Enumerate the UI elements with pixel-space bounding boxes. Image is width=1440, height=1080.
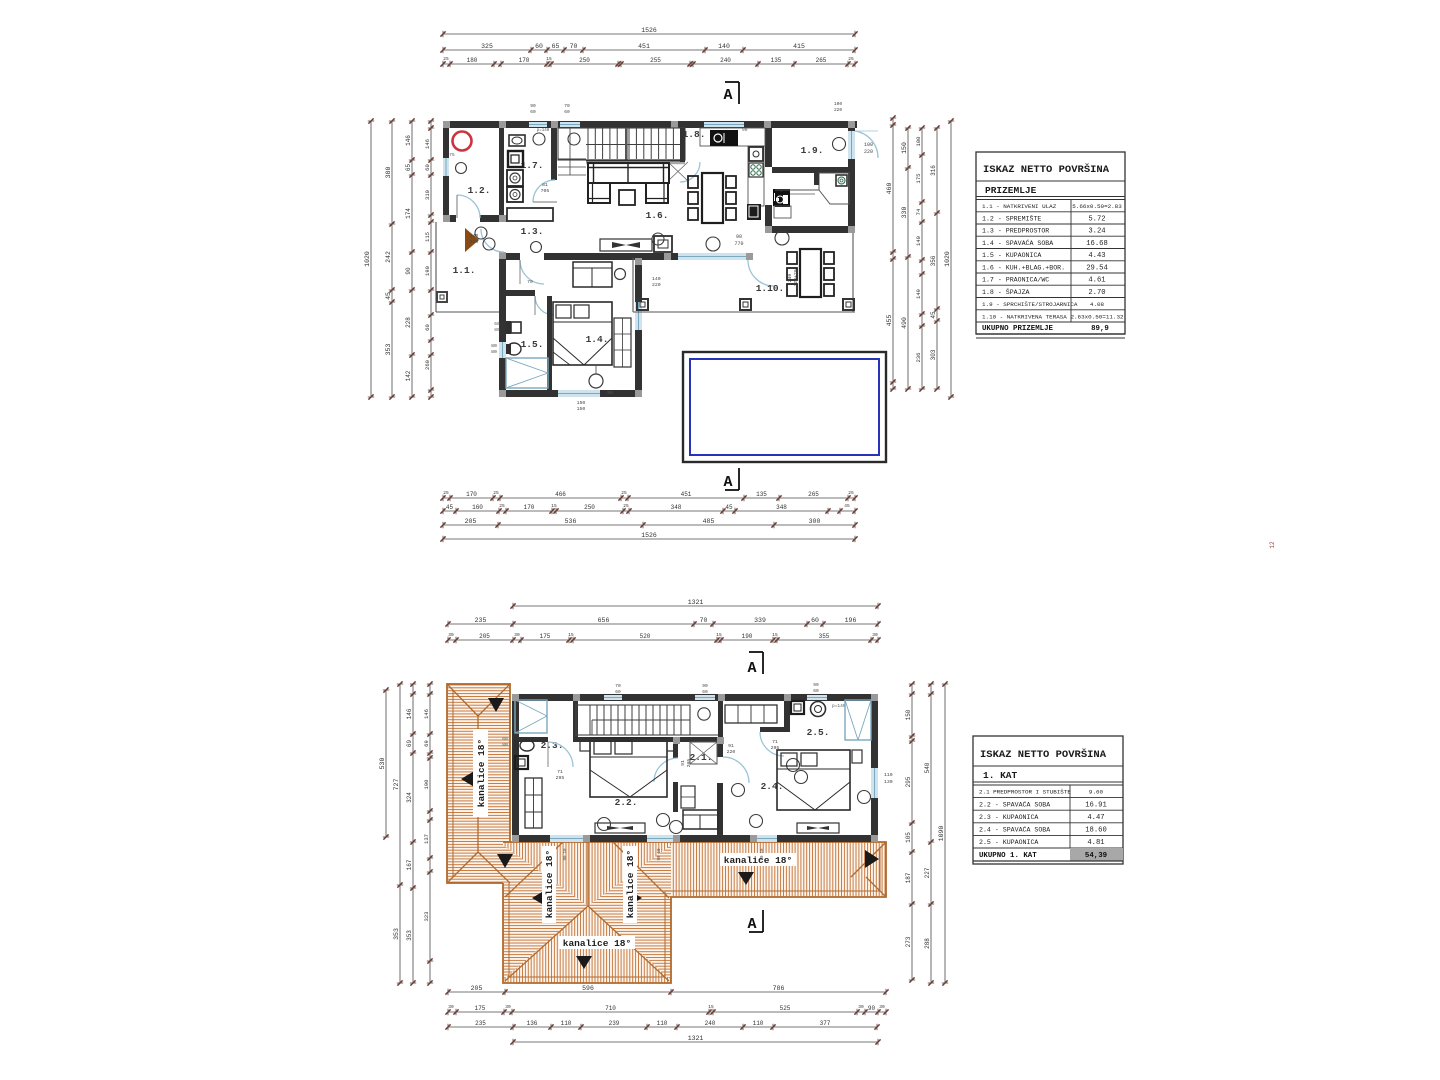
svg-text:140: 140	[652, 276, 661, 282]
svg-text:25: 25	[623, 503, 629, 509]
svg-text:1.9.: 1.9.	[801, 145, 824, 156]
svg-text:1.4.: 1.4.	[586, 334, 609, 345]
svg-text:25: 25	[848, 490, 854, 496]
svg-text:170: 170	[519, 57, 530, 64]
svg-text:UKUPNO 1. KAT: UKUPNO 1. KAT	[979, 852, 1037, 860]
svg-text:1.1.: 1.1.	[453, 265, 476, 276]
svg-text:265: 265	[808, 491, 819, 498]
svg-text:260: 260	[424, 360, 431, 370]
svg-text:451: 451	[681, 491, 692, 498]
svg-text:4.08: 4.08	[1090, 301, 1105, 308]
svg-text:380: 380	[385, 167, 392, 179]
svg-text:kanalice 18°: kanalice 18°	[544, 850, 555, 918]
svg-text:146: 146	[405, 135, 412, 146]
svg-text:1020: 1020	[364, 251, 371, 267]
svg-text:250: 250	[584, 504, 595, 511]
svg-text:71: 71	[772, 739, 778, 745]
svg-text:5.72: 5.72	[1088, 215, 1105, 223]
svg-text:1526: 1526	[641, 27, 657, 34]
svg-text:30: 30	[505, 1004, 511, 1010]
svg-text:60: 60	[424, 164, 431, 171]
svg-text:90: 90	[702, 683, 708, 689]
svg-text:1.3 - PREDPROSTOR: 1.3 - PREDPROSTOR	[982, 228, 1049, 235]
svg-text:2.4.: 2.4.	[761, 781, 784, 792]
svg-text:80: 80	[494, 327, 500, 333]
svg-text:150: 150	[577, 400, 586, 406]
svg-text:70: 70	[615, 683, 621, 689]
svg-text:242: 242	[385, 251, 392, 263]
svg-text:150: 150	[901, 142, 908, 154]
svg-text:596: 596	[582, 985, 594, 992]
svg-text:355: 355	[819, 633, 830, 640]
svg-text:80: 80	[502, 742, 508, 748]
svg-text:A: A	[723, 87, 732, 104]
svg-text:60: 60	[615, 689, 621, 695]
svg-text:727: 727	[393, 779, 400, 791]
svg-text:16.68: 16.68	[1086, 240, 1108, 248]
svg-text:353: 353	[385, 344, 392, 356]
svg-text:30: 30	[448, 632, 454, 638]
svg-text:A: A	[747, 660, 756, 677]
svg-text:60: 60	[530, 109, 536, 115]
svg-text:1.7 - PRAONICA/WC: 1.7 - PRAONICA/WC	[982, 277, 1049, 284]
svg-text:15: 15	[568, 632, 574, 638]
svg-text:1526: 1526	[641, 532, 657, 539]
svg-text:45: 45	[844, 503, 850, 509]
svg-text:205: 205	[479, 633, 490, 640]
svg-text:60: 60	[502, 736, 508, 742]
svg-text:kanalice 18°: kanalice 18°	[563, 938, 631, 949]
svg-text:295: 295	[556, 775, 565, 781]
svg-text:353: 353	[393, 928, 400, 940]
svg-text:60: 60	[811, 617, 819, 624]
svg-text:75: 75	[449, 152, 455, 158]
svg-text:2.1 PREDPROSTOR I STUBIŠTE: 2.1 PREDPROSTOR I STUBIŠTE	[979, 789, 1071, 796]
svg-text:540: 540	[924, 762, 931, 773]
svg-text:240: 240	[787, 274, 793, 283]
svg-text:80: 80	[491, 349, 497, 355]
svg-text:1.10.: 1.10.	[756, 283, 785, 294]
svg-text:1090: 1090	[938, 826, 945, 842]
svg-text:325: 325	[481, 43, 493, 50]
svg-text:12: 12	[1269, 541, 1276, 549]
svg-text:135: 135	[771, 57, 782, 64]
svg-text:45: 45	[446, 504, 454, 511]
svg-text:A: A	[723, 474, 732, 491]
svg-text:74: 74	[915, 208, 922, 215]
svg-text:146: 146	[423, 709, 430, 719]
svg-text:160: 160	[472, 504, 483, 511]
svg-text:240: 240	[720, 57, 731, 64]
svg-text:p=140: p=140	[832, 703, 846, 709]
svg-text:25: 25	[443, 56, 449, 62]
svg-text:110: 110	[884, 772, 893, 778]
svg-text:100: 100	[915, 137, 922, 147]
svg-text:2.4 - SPAVAĆA SOBA: 2.4 - SPAVAĆA SOBA	[979, 825, 1050, 834]
svg-text:25: 25	[848, 56, 854, 62]
svg-text:295: 295	[905, 776, 912, 787]
svg-text:54,39: 54,39	[1085, 852, 1107, 860]
svg-text:2.2.: 2.2.	[615, 797, 638, 808]
svg-text:228: 228	[405, 317, 412, 328]
svg-text:146: 146	[424, 139, 431, 149]
svg-text:356: 356	[930, 255, 937, 266]
svg-text:220: 220	[864, 149, 873, 155]
svg-text:227: 227	[924, 867, 931, 878]
svg-text:455: 455	[886, 315, 893, 327]
svg-text:175: 175	[915, 174, 922, 184]
svg-text:460: 460	[886, 183, 893, 195]
svg-text:4.81: 4.81	[1087, 839, 1104, 847]
svg-text:220: 220	[470, 239, 479, 245]
svg-text:705: 705	[541, 188, 550, 194]
svg-text:300: 300	[809, 518, 821, 525]
svg-text:170: 170	[466, 491, 477, 498]
svg-text:2.5 - KUPAONICA: 2.5 - KUPAONICA	[979, 839, 1038, 846]
svg-text:536: 536	[565, 518, 577, 525]
svg-text:10: 10	[761, 848, 765, 854]
svg-text:60: 60	[702, 689, 708, 695]
svg-text:90: 90	[736, 234, 742, 240]
svg-text:466: 466	[555, 491, 566, 498]
svg-text:30: 30	[448, 1004, 454, 1010]
svg-text:kanalice 18°: kanalice 18°	[476, 739, 487, 807]
svg-text:239: 239	[609, 1020, 620, 1027]
svg-text:377: 377	[820, 1020, 831, 1027]
svg-text:45: 45	[385, 292, 392, 300]
svg-text:1.4 - SPAVAĆA SOBA: 1.4 - SPAVAĆA SOBA	[982, 238, 1053, 247]
svg-text:1.6 - KUH.+BLAG.+BOR.: 1.6 - KUH.+BLAG.+BOR.	[982, 264, 1065, 271]
svg-text:70: 70	[570, 43, 578, 50]
svg-text:25: 25	[499, 503, 505, 509]
svg-text:175: 175	[540, 633, 551, 640]
svg-text:525: 525	[780, 1005, 791, 1012]
svg-text:45: 45	[725, 504, 733, 511]
svg-text:2.3 - KUPAONICA: 2.3 - KUPAONICA	[979, 814, 1038, 821]
svg-text:30: 30	[858, 1004, 864, 1010]
svg-text:303: 303	[930, 349, 937, 360]
svg-text:1.2 - SPREMIŠTE: 1.2 - SPREMIŠTE	[982, 213, 1041, 222]
svg-text:150: 150	[905, 709, 912, 720]
svg-text:15: 15	[546, 56, 552, 62]
svg-text:25: 25	[493, 490, 499, 496]
svg-text:90: 90	[868, 1005, 876, 1012]
svg-text:1.5 - KUPAONICA: 1.5 - KUPAONICA	[982, 252, 1041, 259]
svg-text:71: 71	[557, 769, 563, 775]
svg-text:10: 10	[564, 848, 568, 854]
svg-text:1.8 - ŠPAJZA: 1.8 - ŠPAJZA	[982, 287, 1030, 296]
svg-text:1.5.: 1.5.	[521, 339, 544, 350]
svg-text:100: 100	[834, 101, 842, 107]
svg-text:220: 220	[652, 282, 661, 288]
svg-text:137: 137	[423, 834, 430, 844]
svg-text:90: 90	[742, 127, 748, 133]
svg-text:255: 255	[650, 57, 661, 64]
svg-text:2.1.: 2.1.	[690, 752, 713, 763]
svg-text:3.24: 3.24	[1088, 228, 1105, 236]
svg-text:kanalice 18°: kanalice 18°	[625, 850, 636, 918]
svg-text:1.9 - SPRCHIŠTE/STROJARNICA: 1.9 - SPRCHIŠTE/STROJARNICA	[982, 301, 1078, 308]
svg-text:70: 70	[700, 617, 708, 624]
svg-text:9.60: 9.60	[1089, 789, 1104, 796]
svg-text:29.54: 29.54	[1086, 264, 1108, 272]
svg-text:149: 149	[915, 289, 922, 299]
svg-text:PRIZEMLJE: PRIZEMLJE	[985, 185, 1037, 196]
svg-text:220: 220	[834, 107, 842, 113]
svg-text:485: 485	[703, 518, 715, 525]
svg-text:15: 15	[772, 632, 778, 638]
svg-text:205: 205	[465, 518, 477, 525]
svg-text:70: 70	[527, 279, 533, 285]
svg-text:1321: 1321	[688, 599, 704, 606]
svg-text:25: 25	[621, 490, 627, 496]
svg-text:4.61: 4.61	[1088, 277, 1105, 285]
svg-text:45: 45	[930, 311, 937, 319]
svg-text:190: 190	[742, 633, 753, 640]
svg-text:339: 339	[754, 617, 766, 624]
svg-text:1.8.: 1.8.	[683, 129, 706, 140]
svg-text:30: 30	[872, 632, 878, 638]
svg-text:kanalice 18°: kanalice 18°	[724, 855, 792, 866]
svg-text:90: 90	[405, 267, 412, 275]
svg-text:490: 490	[901, 317, 908, 329]
svg-text:60: 60	[494, 321, 500, 327]
svg-text:110: 110	[753, 1020, 764, 1027]
svg-text:150: 150	[577, 406, 586, 412]
svg-text:100: 100	[864, 142, 873, 148]
svg-text:136: 136	[527, 1020, 538, 1027]
svg-text:190: 190	[424, 266, 431, 276]
svg-text:1.6.: 1.6.	[646, 210, 669, 221]
svg-text:81: 81	[542, 182, 548, 188]
svg-text:90: 90	[761, 855, 765, 861]
svg-text:2.63x0.50=11.32: 2.63x0.50=11.32	[1070, 313, 1123, 320]
svg-text:70: 70	[564, 103, 570, 109]
svg-text:273: 273	[905, 936, 912, 947]
svg-text:10: 10	[658, 848, 662, 854]
svg-text:175: 175	[475, 1005, 486, 1012]
svg-text:2.70: 2.70	[1088, 289, 1105, 297]
svg-text:1020: 1020	[944, 251, 951, 267]
svg-text:174: 174	[405, 208, 412, 219]
svg-text:180: 180	[467, 57, 478, 64]
svg-text:415: 415	[793, 43, 805, 50]
svg-text:146: 146	[406, 708, 413, 719]
svg-text:220+20: 220+20	[793, 269, 799, 286]
svg-text:250: 250	[579, 57, 590, 64]
svg-text:323: 323	[423, 912, 430, 922]
svg-text:1. KAT: 1. KAT	[983, 770, 1018, 781]
svg-text:353: 353	[406, 930, 413, 941]
svg-text:170: 170	[524, 504, 535, 511]
svg-text:196: 196	[845, 617, 857, 624]
svg-text:1.1 - NATKRIVENI ULAZ: 1.1 - NATKRIVENI ULAZ	[982, 203, 1057, 210]
svg-text:348: 348	[671, 504, 682, 511]
svg-text:130: 130	[884, 779, 893, 785]
svg-text:140: 140	[915, 236, 922, 246]
svg-text:ISKAZ NETTO POVRŠINA: ISKAZ NETTO POVRŠINA	[980, 747, 1107, 761]
svg-text:25: 25	[443, 490, 449, 496]
svg-text:520: 520	[640, 633, 651, 640]
svg-text:236: 236	[915, 353, 922, 363]
svg-text:15: 15	[716, 632, 722, 638]
svg-text:786: 786	[773, 985, 785, 992]
svg-text:ISKAZ NETTO POVRŠINA: ISKAZ NETTO POVRŠINA	[983, 162, 1110, 176]
svg-text:220: 220	[727, 749, 736, 755]
svg-text:235: 235	[475, 617, 487, 624]
svg-text:324: 324	[406, 792, 413, 803]
svg-text:140: 140	[470, 233, 479, 239]
svg-text:288: 288	[924, 938, 931, 949]
svg-text:4.47: 4.47	[1087, 814, 1104, 822]
svg-text:65: 65	[552, 43, 560, 50]
svg-text:90: 90	[564, 855, 568, 861]
svg-text:190: 190	[423, 780, 430, 790]
svg-text:110: 110	[657, 1020, 668, 1027]
svg-text:15: 15	[708, 1004, 714, 1010]
svg-text:205: 205	[471, 985, 483, 992]
svg-text:90: 90	[813, 682, 819, 688]
svg-text:348: 348	[776, 504, 787, 511]
svg-text:16.91: 16.91	[1085, 801, 1107, 809]
svg-text:316: 316	[930, 165, 937, 176]
svg-text:30: 30	[879, 1004, 885, 1010]
svg-text:710: 710	[605, 1005, 616, 1012]
svg-text:69: 69	[406, 740, 413, 748]
svg-text:A: A	[747, 916, 756, 933]
svg-text:60: 60	[564, 109, 570, 115]
svg-text:770: 770	[734, 241, 743, 247]
svg-text:65: 65	[405, 164, 412, 172]
svg-text:69: 69	[423, 740, 430, 747]
svg-text:142: 142	[405, 370, 412, 381]
svg-text:656: 656	[598, 617, 610, 624]
svg-text:167: 167	[406, 859, 413, 870]
svg-text:4.43: 4.43	[1088, 252, 1105, 260]
svg-text:91: 91	[728, 743, 734, 749]
svg-text:140: 140	[718, 43, 730, 50]
svg-text:60: 60	[535, 43, 543, 50]
svg-text:UKUPNO PRIZEMLJE: UKUPNO PRIZEMLJE	[982, 325, 1054, 333]
svg-text:330: 330	[901, 207, 908, 219]
svg-text:2.5.: 2.5.	[807, 727, 830, 738]
svg-text:5.66x0.50=2.83: 5.66x0.50=2.83	[1072, 203, 1122, 210]
svg-text:30: 30	[514, 632, 520, 638]
svg-text:135: 135	[756, 491, 767, 498]
svg-text:1321: 1321	[688, 1035, 704, 1042]
svg-text:110: 110	[561, 1020, 572, 1027]
svg-text:451: 451	[638, 43, 650, 50]
svg-text:18.60: 18.60	[1085, 827, 1107, 835]
svg-text:89,9: 89,9	[1091, 325, 1109, 333]
svg-text:1.3.: 1.3.	[521, 226, 544, 237]
svg-text:60: 60	[813, 688, 819, 694]
svg-text:235: 235	[475, 1020, 486, 1027]
svg-text:15: 15	[551, 503, 557, 509]
svg-text:90: 90	[530, 103, 536, 109]
svg-text:265: 265	[816, 57, 827, 64]
svg-text:60: 60	[424, 324, 431, 331]
svg-text:530: 530	[379, 758, 386, 770]
svg-text:1.10 - NATKRIVENA TERASA: 1.10 - NATKRIVENA TERASA	[982, 313, 1067, 320]
svg-text:115: 115	[424, 232, 431, 242]
svg-text:105: 105	[905, 832, 912, 843]
svg-text:80: 80	[491, 343, 497, 349]
svg-text:310: 310	[424, 190, 431, 200]
svg-text:90: 90	[658, 855, 662, 861]
svg-text:1.2.: 1.2.	[468, 185, 491, 196]
svg-text:p=140: p=140	[537, 129, 550, 133]
svg-text:91: 91	[680, 760, 686, 766]
svg-text:2.2 - SPAVAĆA SOBA: 2.2 - SPAVAĆA SOBA	[979, 799, 1050, 808]
svg-text:240: 240	[705, 1020, 716, 1027]
svg-text:90: 90	[607, 390, 613, 396]
svg-text:187: 187	[905, 872, 912, 883]
